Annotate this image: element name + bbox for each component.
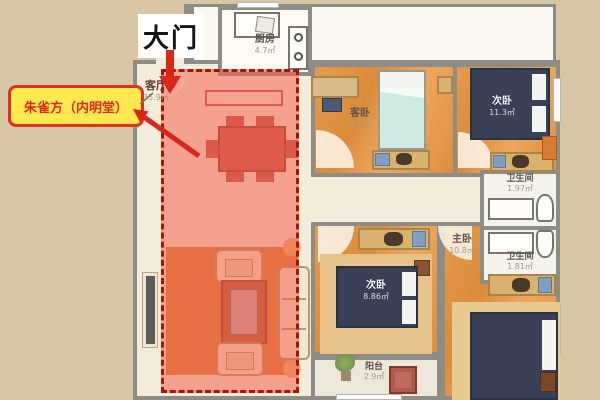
- bed-pillow: [542, 320, 556, 370]
- second-bedroom-bottom-name: 次卧: [348, 280, 404, 292]
- mat-inner: [395, 372, 411, 388]
- fengshui-label: 朱雀方（内明堂）: [8, 85, 144, 127]
- guest-bedroom-area: 10.5㎡: [335, 120, 385, 129]
- bed-pillow: [380, 72, 424, 88]
- fengshui-text: 朱雀方（内明堂）: [24, 97, 128, 116]
- balcony-area: 2.9㎡: [352, 372, 396, 381]
- kitchen-area: 4.7㎡: [218, 46, 312, 55]
- label-second-bedroom-bottom: 次卧 8.86㎡: [348, 280, 404, 301]
- nightstand: [540, 372, 556, 392]
- label-balcony: 阳台 2.9㎡: [352, 362, 396, 382]
- fengshui-overlay: [161, 69, 299, 393]
- floorplan-image: 厨房 4.7㎡ 客厅 35.9㎡ 客卧 10.5㎡ 次卧 11.3㎡ 卫生间 1…: [0, 0, 600, 400]
- window: [336, 394, 402, 400]
- balcony-name: 阳台: [352, 362, 396, 372]
- window: [237, 2, 279, 8]
- main-door-text: 大门: [143, 18, 199, 55]
- bench-item: [538, 277, 552, 293]
- bench-pillow: [384, 232, 403, 246]
- guest-bed: [378, 70, 426, 150]
- label-kitchen: 厨房 4.7㎡: [218, 34, 312, 55]
- nightstand: [437, 76, 453, 94]
- bench-pillow: [512, 278, 530, 292]
- bed-pillow: [532, 106, 546, 132]
- bench-item: [412, 231, 426, 247]
- bench-item: [375, 153, 390, 166]
- bed-pillow: [532, 74, 546, 100]
- toilet-icon: [536, 194, 554, 222]
- desk: [311, 76, 359, 98]
- label-second-bedroom-top: 次卧 11.3㎡: [474, 96, 530, 117]
- label-master-bedroom: 主卧 10.8㎡: [434, 234, 490, 255]
- label-bathroom-bottom: 卫生间 1.81㎡: [486, 252, 554, 272]
- bench-pillow: [396, 153, 412, 165]
- tv-icon: [146, 276, 155, 344]
- bathroom-top-area: 1.97㎡: [486, 184, 554, 193]
- kitchen-name: 厨房: [218, 34, 312, 46]
- label-bathroom-top: 卫生间 1.97㎡: [486, 174, 554, 194]
- bathroom-top-name: 卫生间: [486, 174, 554, 184]
- guest-bedroom-name: 客卧: [335, 108, 385, 120]
- window: [553, 78, 561, 122]
- label-guest-bedroom: 客卧 10.5㎡: [335, 108, 385, 129]
- bed-pillow: [402, 272, 416, 296]
- sink-basin: [255, 16, 275, 34]
- blanket-fold: [380, 88, 424, 98]
- second-bedroom-top-name: 次卧: [474, 96, 530, 108]
- entry-opening: [156, 58, 184, 68]
- main-door-label: 大门: [138, 14, 204, 58]
- bench-item: [493, 155, 506, 168]
- master-bedroom-name: 主卧: [434, 234, 490, 246]
- bench-pillow: [512, 155, 529, 168]
- bed-pillow: [402, 300, 416, 324]
- master-bedroom-area: 10.8㎡: [434, 246, 490, 255]
- sink: [488, 198, 534, 220]
- bathroom-bottom-area: 1.81㎡: [486, 262, 554, 271]
- plant-pot: [341, 371, 351, 381]
- second-bedroom-bottom-area: 8.86㎡: [348, 292, 404, 301]
- sink: [488, 232, 534, 254]
- second-bedroom-top-area: 11.3㎡: [474, 108, 530, 117]
- nightstand: [542, 136, 557, 160]
- bathroom-bottom-name: 卫生间: [486, 252, 554, 262]
